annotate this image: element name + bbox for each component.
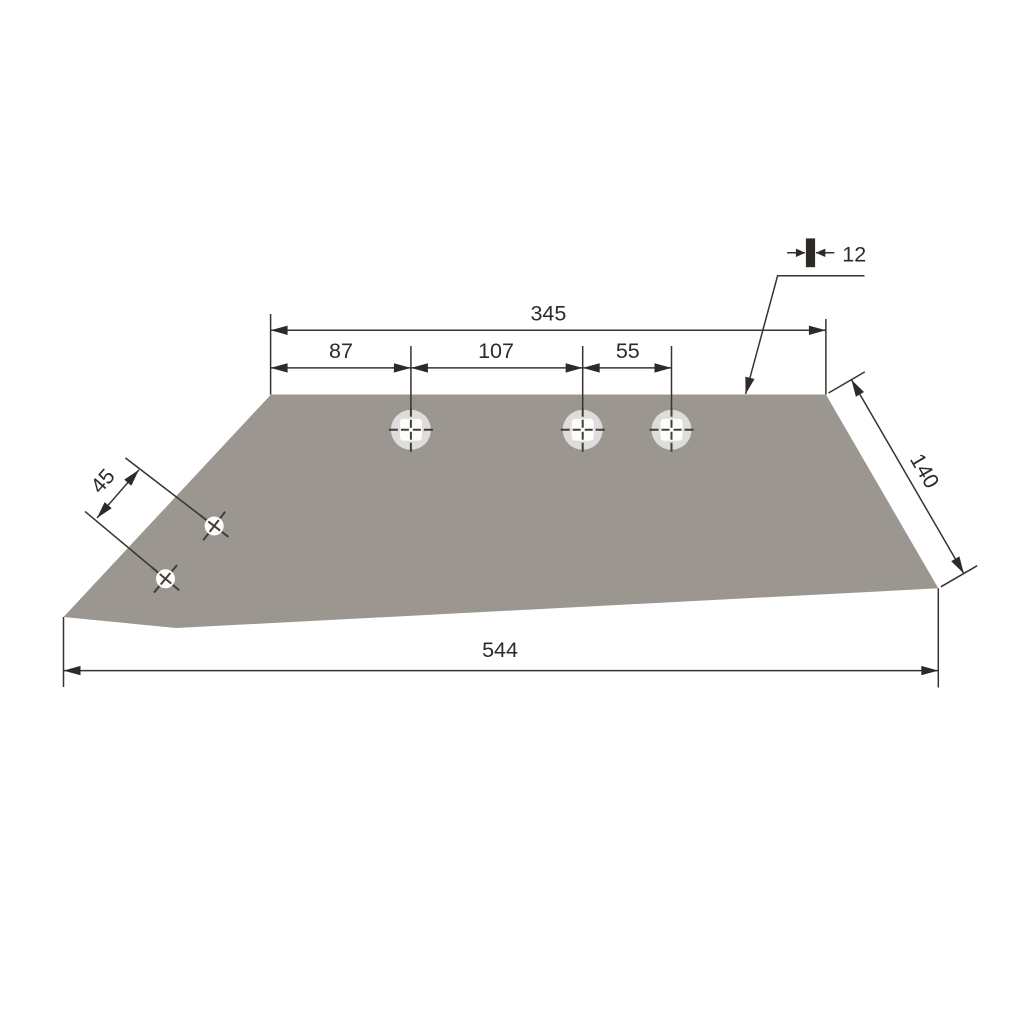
svg-text:107: 107 [478, 339, 514, 363]
svg-text:55: 55 [616, 339, 640, 363]
svg-text:544: 544 [482, 638, 518, 662]
svg-text:87: 87 [329, 339, 353, 363]
svg-text:345: 345 [530, 302, 566, 326]
svg-text:12: 12 [842, 243, 866, 267]
svg-text:140: 140 [905, 449, 944, 492]
svg-text:45: 45 [86, 464, 120, 498]
